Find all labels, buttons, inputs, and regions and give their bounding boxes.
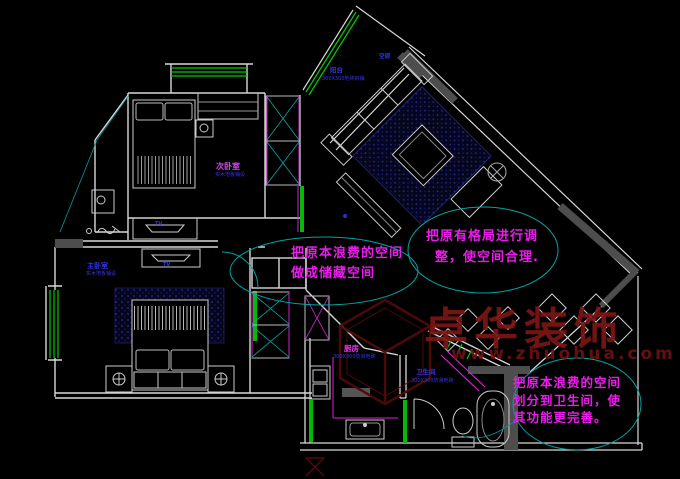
room-label-balcony: 阳台 (330, 67, 343, 74)
tv-label: TV (155, 222, 162, 228)
finish-label-bathroom: 300X300防滑地砖 (411, 379, 454, 385)
annotation-line: 把原有格局进行调 (426, 226, 539, 247)
closet-x-hatch (252, 96, 329, 358)
annotation-line: 整，使空间合理. (426, 247, 539, 268)
room-label-kitchen: 厨房 (344, 345, 359, 354)
annotation-storage: 把原本浪费的空间 做成储藏空间 (291, 244, 403, 284)
watermark-fragment (306, 458, 324, 476)
annotation-line: 把原本浪费的空间 (513, 374, 621, 392)
kitchen-counter-edge (333, 357, 398, 418)
tv-cabinet-secondary (133, 218, 197, 239)
room-label-secondary-bedroom: 次卧室 (216, 162, 240, 171)
finish-label-secondary-bedroom: 实木地板铺设 (215, 173, 245, 179)
annotation-line: 把原本浪费的空间 (291, 244, 403, 264)
annotation-layout: 把原有格局进行调 整，使空间合理. (426, 226, 539, 268)
bath-wall-top (468, 366, 530, 374)
wall-block (55, 239, 83, 248)
annotation-line: 做成储藏空间 (291, 264, 403, 284)
kitchen-counter (310, 366, 384, 439)
wardrobe (198, 93, 258, 119)
room-label-master-bedroom: 主卧室 (87, 262, 108, 270)
room-label-bathroom: 卫生间 (416, 369, 436, 376)
finish-label-master-bedroom: 实木地板铺设 (86, 272, 116, 278)
finish-label-balcony: 300X300地砖斜铺 (322, 77, 365, 83)
annotation-bathroom: 把原本浪费的空间 划分到卫生间，使 其功能更完善。 (513, 374, 621, 427)
label-ac-unit: 空调 (379, 54, 390, 60)
column-symbol (488, 163, 506, 181)
small-label-dot (343, 214, 347, 218)
annotation-line: 其功能更完善。 (513, 409, 621, 427)
finish-label-kitchen: 300X300防滑地砖 (333, 355, 376, 361)
bathroom-fixtures (414, 391, 509, 447)
tv-label: TV (163, 263, 170, 269)
master-bedroom-furniture (106, 249, 234, 392)
floor-plan-canvas: 阳台 300X300地砖斜铺 空调 次卧室 实木地板铺设 主卧室 实木地板铺设 … (0, 0, 680, 479)
tv-cabinet-master (142, 249, 200, 267)
annotation-line: 划分到卫生间，使 (513, 392, 621, 410)
watermark-url: www.zhuohua.com (451, 344, 676, 364)
